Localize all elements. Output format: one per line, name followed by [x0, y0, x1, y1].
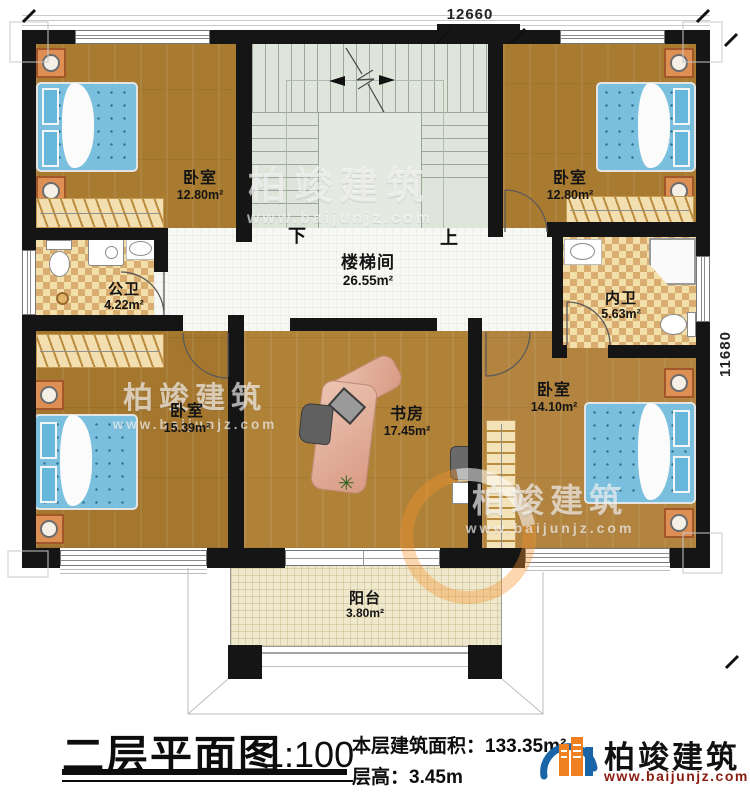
plan-linework [0, 0, 750, 794]
room-label-bedroom-top-left: 卧室 12.80m² [150, 170, 250, 203]
floor-plan-page: 柏竣建筑 www.baijunjz.com 柏竣建筑 www.baijunjz.… [0, 0, 750, 794]
room-label-private-bathroom: 内卫 5.63m² [576, 290, 666, 322]
brand-logo-icon [536, 730, 600, 790]
stair-arrow-icon [379, 75, 395, 85]
stair-direction [329, 48, 395, 112]
brand-website[interactable]: www.baijunjz.com [604, 768, 749, 784]
room-label-stairwell: 楼梯间 26.55m² [308, 253, 428, 288]
dimension-height: 11680 [717, 314, 735, 394]
floor-area-label: 本层建筑面积： [352, 736, 485, 757]
floor-area-row: 本层建筑面积：133.35m² [352, 731, 566, 758]
title-underline-thin [62, 780, 353, 782]
room-label-bedroom-bottom-right: 卧室 14.10m² [504, 382, 604, 415]
door-arc [486, 332, 530, 376]
floor-height-row: 层高：3.45m [352, 762, 463, 789]
floor-height-value: 3.45m [409, 767, 463, 788]
dimension-ticks [23, 10, 738, 668]
stair-arrow-icon [329, 76, 345, 86]
door-arc [183, 333, 228, 378]
room-label-public-bathroom: 公卫 4.22m² [79, 281, 169, 313]
room-label-bedroom-top-right: 卧室 12.80m² [520, 170, 620, 203]
room-label-balcony: 阳台 3.80m² [315, 590, 415, 621]
room-label-study: 书房 17.45m² [357, 406, 457, 439]
room-label-bedroom-bottom-left: 卧室 15.39m² [137, 403, 237, 436]
stair-down-label: 下 [288, 222, 306, 248]
stair-up-label: 上 [440, 224, 458, 250]
dimension-width: 12660 [435, 6, 505, 23]
floor-height-label: 层高： [352, 767, 409, 788]
drawing-scale: 1:100 [264, 734, 354, 776]
